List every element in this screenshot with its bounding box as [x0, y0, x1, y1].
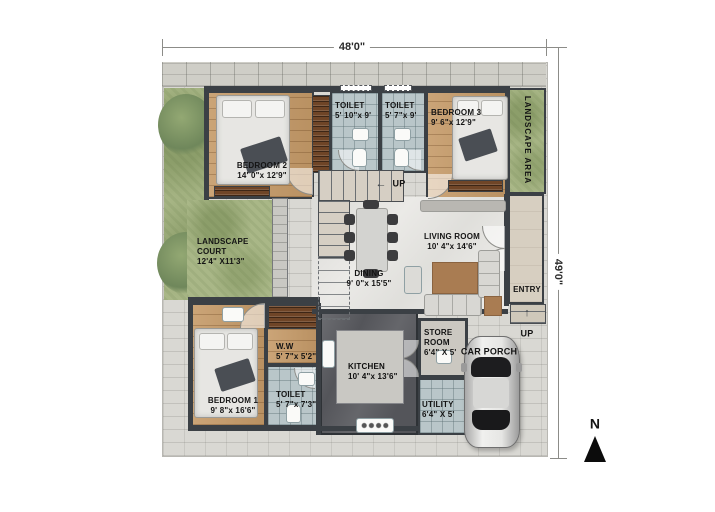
label-landscape-area: LANDSCAPE AREA [522, 96, 532, 184]
dining-chair-icon [363, 200, 379, 209]
dining-chair-icon [344, 214, 355, 225]
dimension-tick [550, 47, 567, 48]
ww-shelves-icon [268, 305, 318, 329]
dining-chair-icon [387, 232, 398, 243]
washbasin-icon [394, 128, 411, 141]
side-table-icon [484, 296, 502, 316]
dimension-height-label: 49'0" [552, 254, 564, 290]
dimension-tick [550, 458, 567, 459]
floor-plan-canvas: 48'0" 49'0" ← UP ↑ UP [0, 0, 715, 512]
window-icon [384, 85, 412, 91]
label-car-porch: CAR PORCH [461, 346, 517, 357]
side-table-icon [404, 266, 422, 294]
label-bedroom1: BEDROOM 1 9' 8"x 16'6" [208, 396, 258, 416]
label-landscape-court: LANDSCAPE COURT 12'4" X11'3" [197, 237, 259, 267]
car-roof-icon [473, 378, 509, 408]
sofa-icon [424, 294, 482, 316]
label-toilet-top-left: TOILET 5' 10"x 9' [335, 101, 371, 121]
shelf-icon [448, 180, 503, 192]
dining-table-icon [356, 208, 388, 272]
wall [188, 300, 193, 430]
rug-icon [432, 262, 478, 294]
label-kitchen: KITCHEN 10' 4"x 13'6" [348, 362, 398, 382]
dimension-tick [546, 39, 547, 56]
dresser-icon [214, 186, 270, 197]
wardrobe-icon [312, 95, 330, 173]
stairs-upper-run [318, 170, 404, 202]
wc-icon [352, 148, 367, 167]
wc-icon [394, 148, 409, 167]
wall [316, 303, 321, 435]
stairs-arrow-icon: ← [376, 178, 387, 190]
window-icon [340, 85, 372, 91]
label-living-room: LIVING ROOM 10' 4"x 14'6" [424, 232, 480, 252]
label-utility: UTILITY 6'4" X 5' [422, 400, 455, 420]
deck-strip [272, 198, 288, 298]
dimension-width-label: 48'0" [334, 41, 370, 53]
label-bedroom2: BEDROOM 2 14' 0"x 12'9" [237, 161, 287, 181]
nightstand-icon [222, 307, 244, 322]
sofa-icon [478, 250, 500, 298]
entry-up-label: UP [521, 328, 534, 339]
dining-chair-icon [387, 214, 398, 225]
wall [204, 86, 209, 200]
car-mirror-icon [461, 363, 467, 372]
dining-chair-icon [344, 250, 355, 261]
console-icon [420, 200, 506, 212]
car-mirror-icon [516, 363, 522, 372]
stairs-up-label: UP [393, 178, 406, 189]
car-rear-glass-icon [472, 410, 510, 430]
label-toilet-top-right: TOILET 5' 7"x 9' [385, 101, 417, 121]
wall [188, 297, 320, 303]
label-bedroom3: BEDROOM 3 9' 6"x 12'9" [431, 108, 481, 128]
dining-chair-icon [387, 250, 398, 261]
washbasin-icon [298, 372, 315, 386]
dining-chair-icon [344, 232, 355, 243]
compass-north-arrow-icon [584, 436, 606, 462]
compass-north-label: N [590, 415, 600, 433]
car-windshield-icon [471, 357, 511, 377]
stairs-dashed-run [318, 256, 350, 320]
label-entry: ENTRY [513, 285, 541, 295]
boundary-stone-band [162, 62, 546, 87]
label-store-room: STORE ROOM 6'4" X 5' [424, 328, 464, 358]
washbasin-icon [352, 128, 369, 141]
sink-icon [322, 340, 335, 368]
label-toilet-bottom: TOILET 5' 7"x 7'3" [276, 390, 316, 410]
label-dining: DINING 9' 0"x 15'5" [347, 269, 392, 289]
stove-icon [356, 418, 394, 433]
dimension-tick [162, 39, 163, 56]
entry-steps-arrow-icon: ↑ [524, 307, 530, 319]
label-ww: W.W 5' 7"x 5'2" [276, 342, 316, 362]
